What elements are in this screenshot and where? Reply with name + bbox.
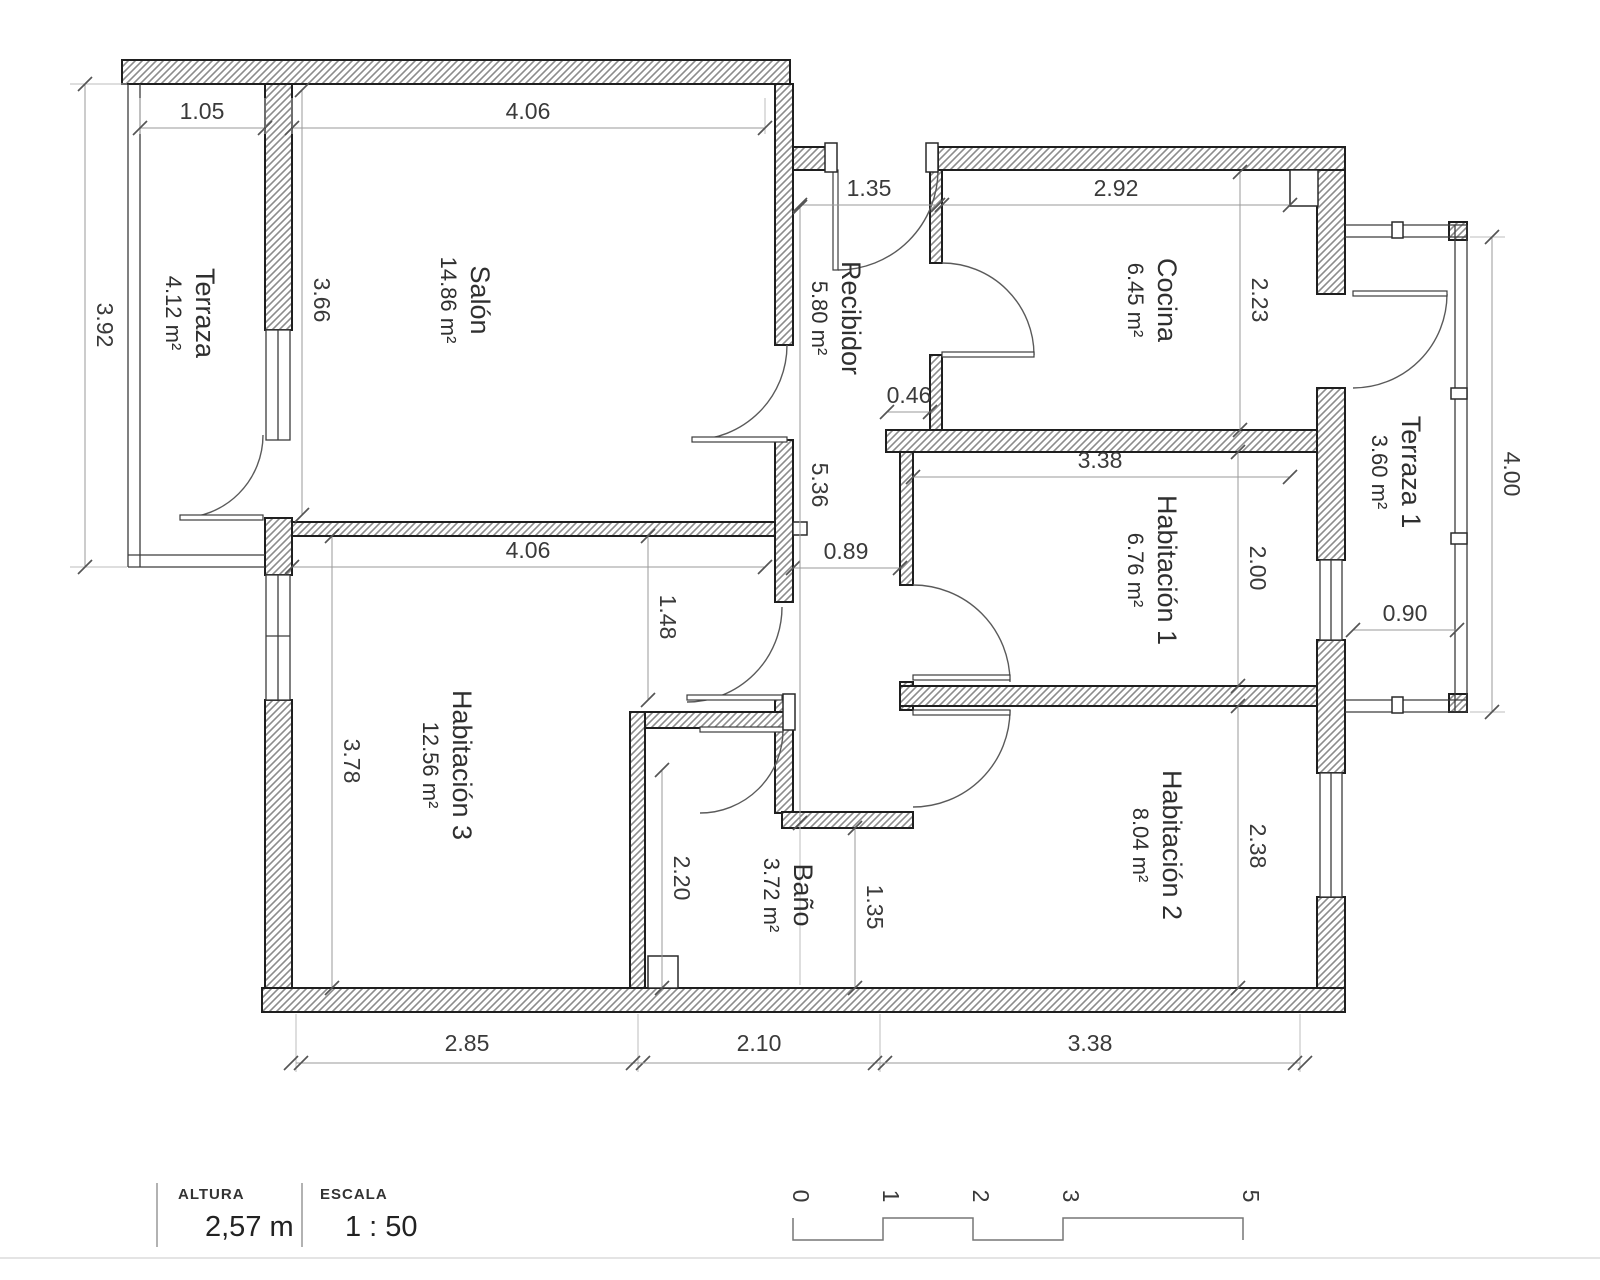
- room-area: 3.72 m²: [759, 858, 784, 933]
- dim-label: 3.38: [1068, 1030, 1113, 1056]
- room-area: 8.04 m²: [1128, 808, 1153, 883]
- room-name: Baño: [788, 863, 818, 926]
- door-terraza: [180, 435, 263, 520]
- dim-label: 2.23: [1247, 278, 1273, 323]
- wall: [775, 440, 793, 602]
- dimension: 3.66: [295, 83, 335, 522]
- dim-label: 1.35: [847, 175, 892, 201]
- dim-label: 1.35: [862, 885, 888, 930]
- room-name: Habitación 2: [1157, 770, 1187, 920]
- scalebar-label: 1: [878, 1190, 904, 1203]
- room-label-terraza: Terraza 4.12 m²: [161, 268, 220, 359]
- room-area: 6.45 m²: [1123, 263, 1148, 338]
- wall: [930, 355, 942, 430]
- wall: [292, 522, 775, 536]
- room-area: 14.86 m²: [436, 257, 461, 344]
- door-terraza1: [1353, 291, 1447, 388]
- dimension: 1.48: [641, 529, 681, 707]
- room-name: Recibidor: [836, 261, 866, 375]
- dim-label: 3.66: [309, 278, 335, 323]
- room-area: 4.12 m²: [161, 276, 186, 351]
- wall: [122, 60, 790, 84]
- room-label-habitacion2: Habitación 2 8.04 m²: [1128, 770, 1187, 920]
- room-label-recibidor: Recibidor 5.80 m²: [807, 261, 866, 375]
- room-name: Salón: [465, 265, 495, 334]
- dim-label: 3.92: [92, 303, 118, 348]
- door-salon: [692, 345, 787, 442]
- room-name: Terraza: [190, 268, 220, 359]
- door-cocina: [942, 263, 1034, 357]
- dimension: 3.78: [325, 529, 365, 995]
- dim-label: 3.38: [1078, 447, 1123, 473]
- room-area: 5.80 m²: [807, 281, 832, 356]
- dim-label: 4.06: [506, 98, 551, 124]
- dim-label: 0.90: [1383, 600, 1428, 626]
- railings-layer: [128, 84, 1467, 713]
- wall: [1317, 170, 1345, 294]
- door-jamb: [926, 143, 938, 172]
- dimension: 1.35: [793, 175, 945, 212]
- scalebar-label: 3: [1058, 1190, 1084, 1203]
- dimension: 0.90: [1346, 600, 1464, 637]
- altura-label: ALTURA: [178, 1186, 245, 1203]
- door-jamb: [783, 694, 795, 730]
- room-label-salon: Salón 14.86 m²: [436, 257, 495, 344]
- wall: [782, 812, 913, 828]
- room-name: Habitación 1: [1152, 495, 1182, 645]
- dim-label: 2.92: [1094, 175, 1139, 201]
- dim-label: 4.06: [506, 537, 551, 563]
- dim-label: 2.10: [737, 1030, 782, 1056]
- dim-label: 2.85: [445, 1030, 490, 1056]
- scalebar: 0 1 2 3 5: [788, 1190, 1264, 1240]
- dim-label: 0.89: [824, 538, 869, 564]
- wall: [938, 147, 1345, 170]
- wall: [265, 84, 292, 330]
- room-name: Cocina: [1152, 258, 1182, 343]
- dimension: 3.38: [880, 1030, 1312, 1070]
- railing-post: [1451, 533, 1467, 544]
- door-habitacion1: [913, 585, 1010, 682]
- door-habitacion2: [913, 710, 1010, 807]
- escala-value: 1 : 50: [345, 1211, 418, 1243]
- dimension: 0.46: [880, 382, 937, 419]
- wall: [262, 988, 1345, 1012]
- dim-label: 4.00: [1499, 452, 1525, 497]
- scalebar-label: 5: [1238, 1190, 1264, 1203]
- wall: [1317, 388, 1345, 560]
- room-area: 3.60 m²: [1367, 435, 1392, 510]
- bathroom-fixture: [648, 956, 678, 988]
- wall: [900, 686, 1345, 706]
- railing-post: [1451, 388, 1467, 399]
- dim-label: 1.48: [655, 595, 681, 640]
- floorplan-page: 1.05 4.06 1.35 2.92 0.46 3.38: [0, 0, 1600, 1280]
- dimension: 2.00: [1231, 445, 1271, 693]
- room-area: 6.76 m²: [1123, 533, 1148, 608]
- dimension: 2.92: [935, 175, 1297, 212]
- scalebar-label: 2: [968, 1190, 994, 1203]
- dimension: 4.06: [285, 537, 772, 574]
- room-label-cocina: Cocina 6.45 m²: [1123, 258, 1182, 343]
- dimension: 3.92: [78, 77, 118, 574]
- dim-label: 2.38: [1245, 824, 1271, 869]
- door-jamb: [825, 143, 837, 172]
- dimension: 4.06: [285, 98, 772, 135]
- room-label-bano: Baño 3.72 m²: [759, 858, 818, 933]
- wall: [630, 712, 645, 988]
- railing-post: [1449, 694, 1467, 712]
- wall: [775, 84, 793, 345]
- door-bano: [700, 727, 783, 813]
- scalebar-steps: [793, 1218, 1243, 1240]
- room-name: Habitación 3: [447, 690, 477, 840]
- wall: [1317, 640, 1345, 773]
- railing-post: [1392, 222, 1403, 238]
- dim-label: 3.78: [339, 739, 365, 784]
- railing-post: [1392, 697, 1403, 713]
- room-label-habitacion1: Habitación 1 6.76 m²: [1123, 495, 1182, 645]
- dimension: 2.85: [284, 1030, 650, 1070]
- wall: [265, 700, 292, 988]
- room-name: Terraza 1: [1396, 416, 1426, 529]
- wall: [630, 712, 790, 728]
- dim-label: 0.46: [887, 382, 932, 408]
- dim-label: 5.36: [807, 463, 833, 508]
- dimension: 1.35: [848, 821, 888, 995]
- dimension: 1.05: [133, 98, 272, 135]
- wall: [930, 170, 942, 263]
- scalebar-label: 0: [788, 1190, 814, 1203]
- dim-label: 2.20: [669, 856, 695, 901]
- room-label-terraza1: Terraza 1 3.60 m²: [1367, 416, 1426, 529]
- dimension: 4.00: [1485, 230, 1525, 719]
- room-area: 12.56 m²: [418, 722, 443, 809]
- dimension: 2.10: [638, 1030, 892, 1070]
- dim-label: 2.00: [1245, 546, 1271, 591]
- floorplan-drawing: 1.05 4.06 1.35 2.92 0.46 3.38: [0, 0, 1600, 1280]
- escala-label: ESCALA: [320, 1186, 388, 1203]
- altura-value: 2,57 m: [205, 1211, 294, 1243]
- room-label-habitacion3: Habitación 3 12.56 m²: [418, 690, 477, 840]
- wall: [265, 518, 292, 575]
- dim-label: 1.05: [180, 98, 225, 124]
- dimension: 2.23: [1233, 165, 1273, 437]
- dimension: 2.38: [1231, 699, 1271, 995]
- door-habitacion3: [687, 607, 782, 702]
- dimension: 0.89: [786, 538, 907, 575]
